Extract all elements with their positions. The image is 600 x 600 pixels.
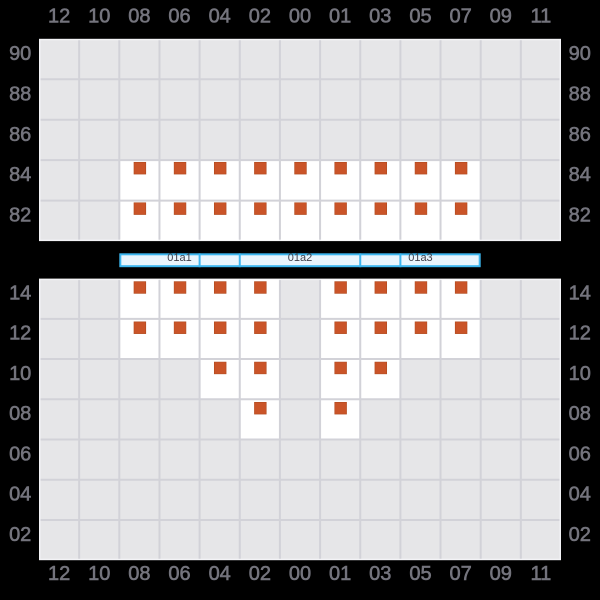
svg-text:10: 10 <box>569 363 591 385</box>
svg-text:14: 14 <box>569 283 591 305</box>
svg-text:10: 10 <box>88 563 110 585</box>
svg-text:04: 04 <box>9 484 31 506</box>
svg-text:03: 03 <box>369 563 391 585</box>
svg-text:11: 11 <box>531 563 552 585</box>
svg-text:11: 11 <box>531 5 552 27</box>
svg-text:01: 01 <box>329 5 351 27</box>
svg-text:01: 01 <box>329 563 351 585</box>
svg-text:09: 09 <box>490 563 512 585</box>
svg-text:06: 06 <box>168 563 190 585</box>
svg-text:06: 06 <box>569 443 591 465</box>
svg-text:88: 88 <box>569 83 591 105</box>
svg-text:84: 84 <box>9 164 31 186</box>
svg-text:02: 02 <box>249 5 271 27</box>
svg-text:10: 10 <box>88 5 110 27</box>
svg-text:06: 06 <box>9 443 31 465</box>
svg-text:00: 00 <box>289 563 311 585</box>
svg-text:08: 08 <box>569 403 591 425</box>
svg-text:02: 02 <box>249 563 271 585</box>
svg-text:05: 05 <box>409 563 431 585</box>
svg-text:04: 04 <box>569 484 591 506</box>
svg-text:82: 82 <box>9 205 31 227</box>
svg-text:82: 82 <box>569 205 591 227</box>
svg-text:04: 04 <box>209 5 231 27</box>
svg-text:14: 14 <box>9 283 31 305</box>
svg-text:01a3: 01a3 <box>408 252 432 264</box>
svg-text:08: 08 <box>9 403 31 425</box>
svg-text:04: 04 <box>209 563 231 585</box>
svg-text:02: 02 <box>569 524 591 546</box>
svg-text:00: 00 <box>289 5 311 27</box>
svg-text:05: 05 <box>409 5 431 27</box>
svg-text:08: 08 <box>128 5 150 27</box>
svg-text:12: 12 <box>48 5 70 27</box>
svg-text:86: 86 <box>9 124 31 146</box>
svg-text:84: 84 <box>569 164 591 186</box>
svg-text:12: 12 <box>48 563 70 585</box>
svg-text:01a1: 01a1 <box>167 252 191 264</box>
svg-text:01a2: 01a2 <box>288 252 312 264</box>
svg-text:02: 02 <box>9 524 31 546</box>
svg-text:07: 07 <box>449 563 471 585</box>
svg-text:12: 12 <box>9 323 31 345</box>
svg-text:06: 06 <box>168 5 190 27</box>
svg-text:10: 10 <box>9 363 31 385</box>
svg-text:09: 09 <box>490 5 512 27</box>
svg-text:12: 12 <box>569 323 591 345</box>
svg-text:88: 88 <box>9 83 31 105</box>
svg-text:86: 86 <box>569 124 591 146</box>
svg-text:08: 08 <box>128 563 150 585</box>
svg-text:90: 90 <box>9 43 31 65</box>
svg-text:03: 03 <box>369 5 391 27</box>
svg-text:07: 07 <box>449 5 471 27</box>
svg-text:90: 90 <box>569 43 591 65</box>
